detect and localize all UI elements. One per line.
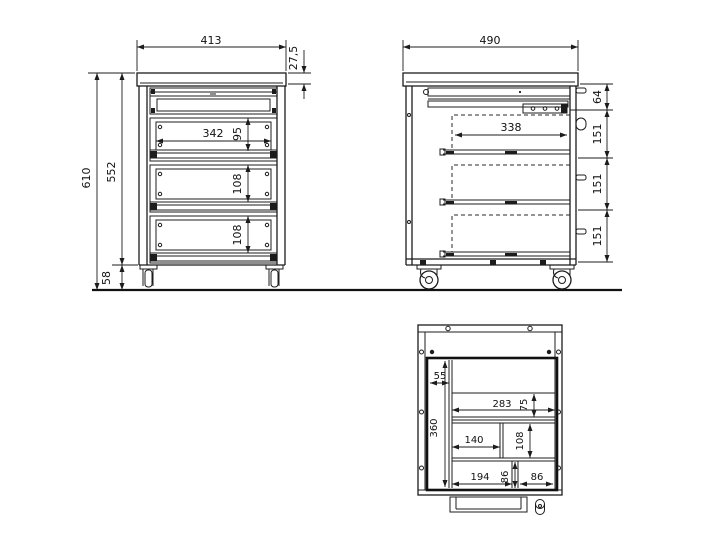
front-drawer-3 xyxy=(150,216,277,263)
dim-drawer-depth: 338 xyxy=(501,121,522,134)
dim-drawer-front-mid: 108 xyxy=(231,174,244,195)
top-tray xyxy=(427,358,557,490)
side-drawer-3 xyxy=(440,215,586,257)
dim-caster-height: 58 xyxy=(100,271,113,285)
front-worktop xyxy=(137,73,286,86)
dim-section-3: 151 xyxy=(591,226,604,247)
top-dimensions: 55 360 283 75 140 108 194 86 86 xyxy=(429,361,555,488)
technical-drawing-page: 413 27,5 610 552 58 342 95 108 108 xyxy=(0,0,726,544)
side-dimensions: 490 338 64 151 151 151 xyxy=(403,34,613,262)
dim-worktop-detail: 27,5 xyxy=(287,46,300,71)
dim-back-comp-width: 283 xyxy=(492,399,511,410)
dim-mid-comp-depth: 108 xyxy=(515,431,526,450)
top-tray-compartments xyxy=(449,360,555,488)
side-top-peg xyxy=(576,88,586,93)
dim-drawer-opening-width: 342 xyxy=(203,127,224,140)
dim-back-comp-depth: 75 xyxy=(519,399,530,412)
front-view: 413 27,5 610 552 58 342 95 108 108 xyxy=(80,34,311,290)
front-pencil-drawer xyxy=(150,88,277,114)
dim-top-section: 64 xyxy=(591,90,604,104)
dim-front-width: 413 xyxy=(201,34,222,47)
dim-front-right-comp-width: 86 xyxy=(531,472,544,483)
dim-depth: 490 xyxy=(480,34,501,47)
side-lock-knob xyxy=(576,118,586,130)
cabinet-three-view-drawing: 413 27,5 610 552 58 342 95 108 108 xyxy=(0,0,726,544)
dim-tray-depth: 360 xyxy=(429,418,440,437)
top-drawer-front xyxy=(450,497,545,515)
dim-front-comp-width: 194 xyxy=(470,472,489,483)
dim-drawer-front-bottom: 108 xyxy=(231,225,244,246)
side-pencil-tray xyxy=(424,88,587,113)
dim-section-2: 151 xyxy=(591,174,604,195)
side-view: 490 338 64 151 151 151 xyxy=(403,34,613,289)
dim-pen-slot: 55 xyxy=(434,371,447,382)
dim-mid-comp-width: 140 xyxy=(464,435,483,446)
dim-pencil-drawer-front: 95 xyxy=(231,127,244,141)
front-casters xyxy=(140,265,283,287)
side-casters xyxy=(417,265,574,289)
side-drawer-2 xyxy=(440,165,586,205)
side-worktop xyxy=(403,73,578,86)
dim-section-1: 151 xyxy=(591,124,604,145)
front-drawer-2 xyxy=(150,165,277,212)
dim-total-height: 610 xyxy=(80,168,93,189)
dim-front-comp-depth: 86 xyxy=(500,471,511,484)
top-view: 55 360 283 75 140 108 194 86 86 xyxy=(418,325,562,515)
dim-body-height: 552 xyxy=(105,162,118,183)
